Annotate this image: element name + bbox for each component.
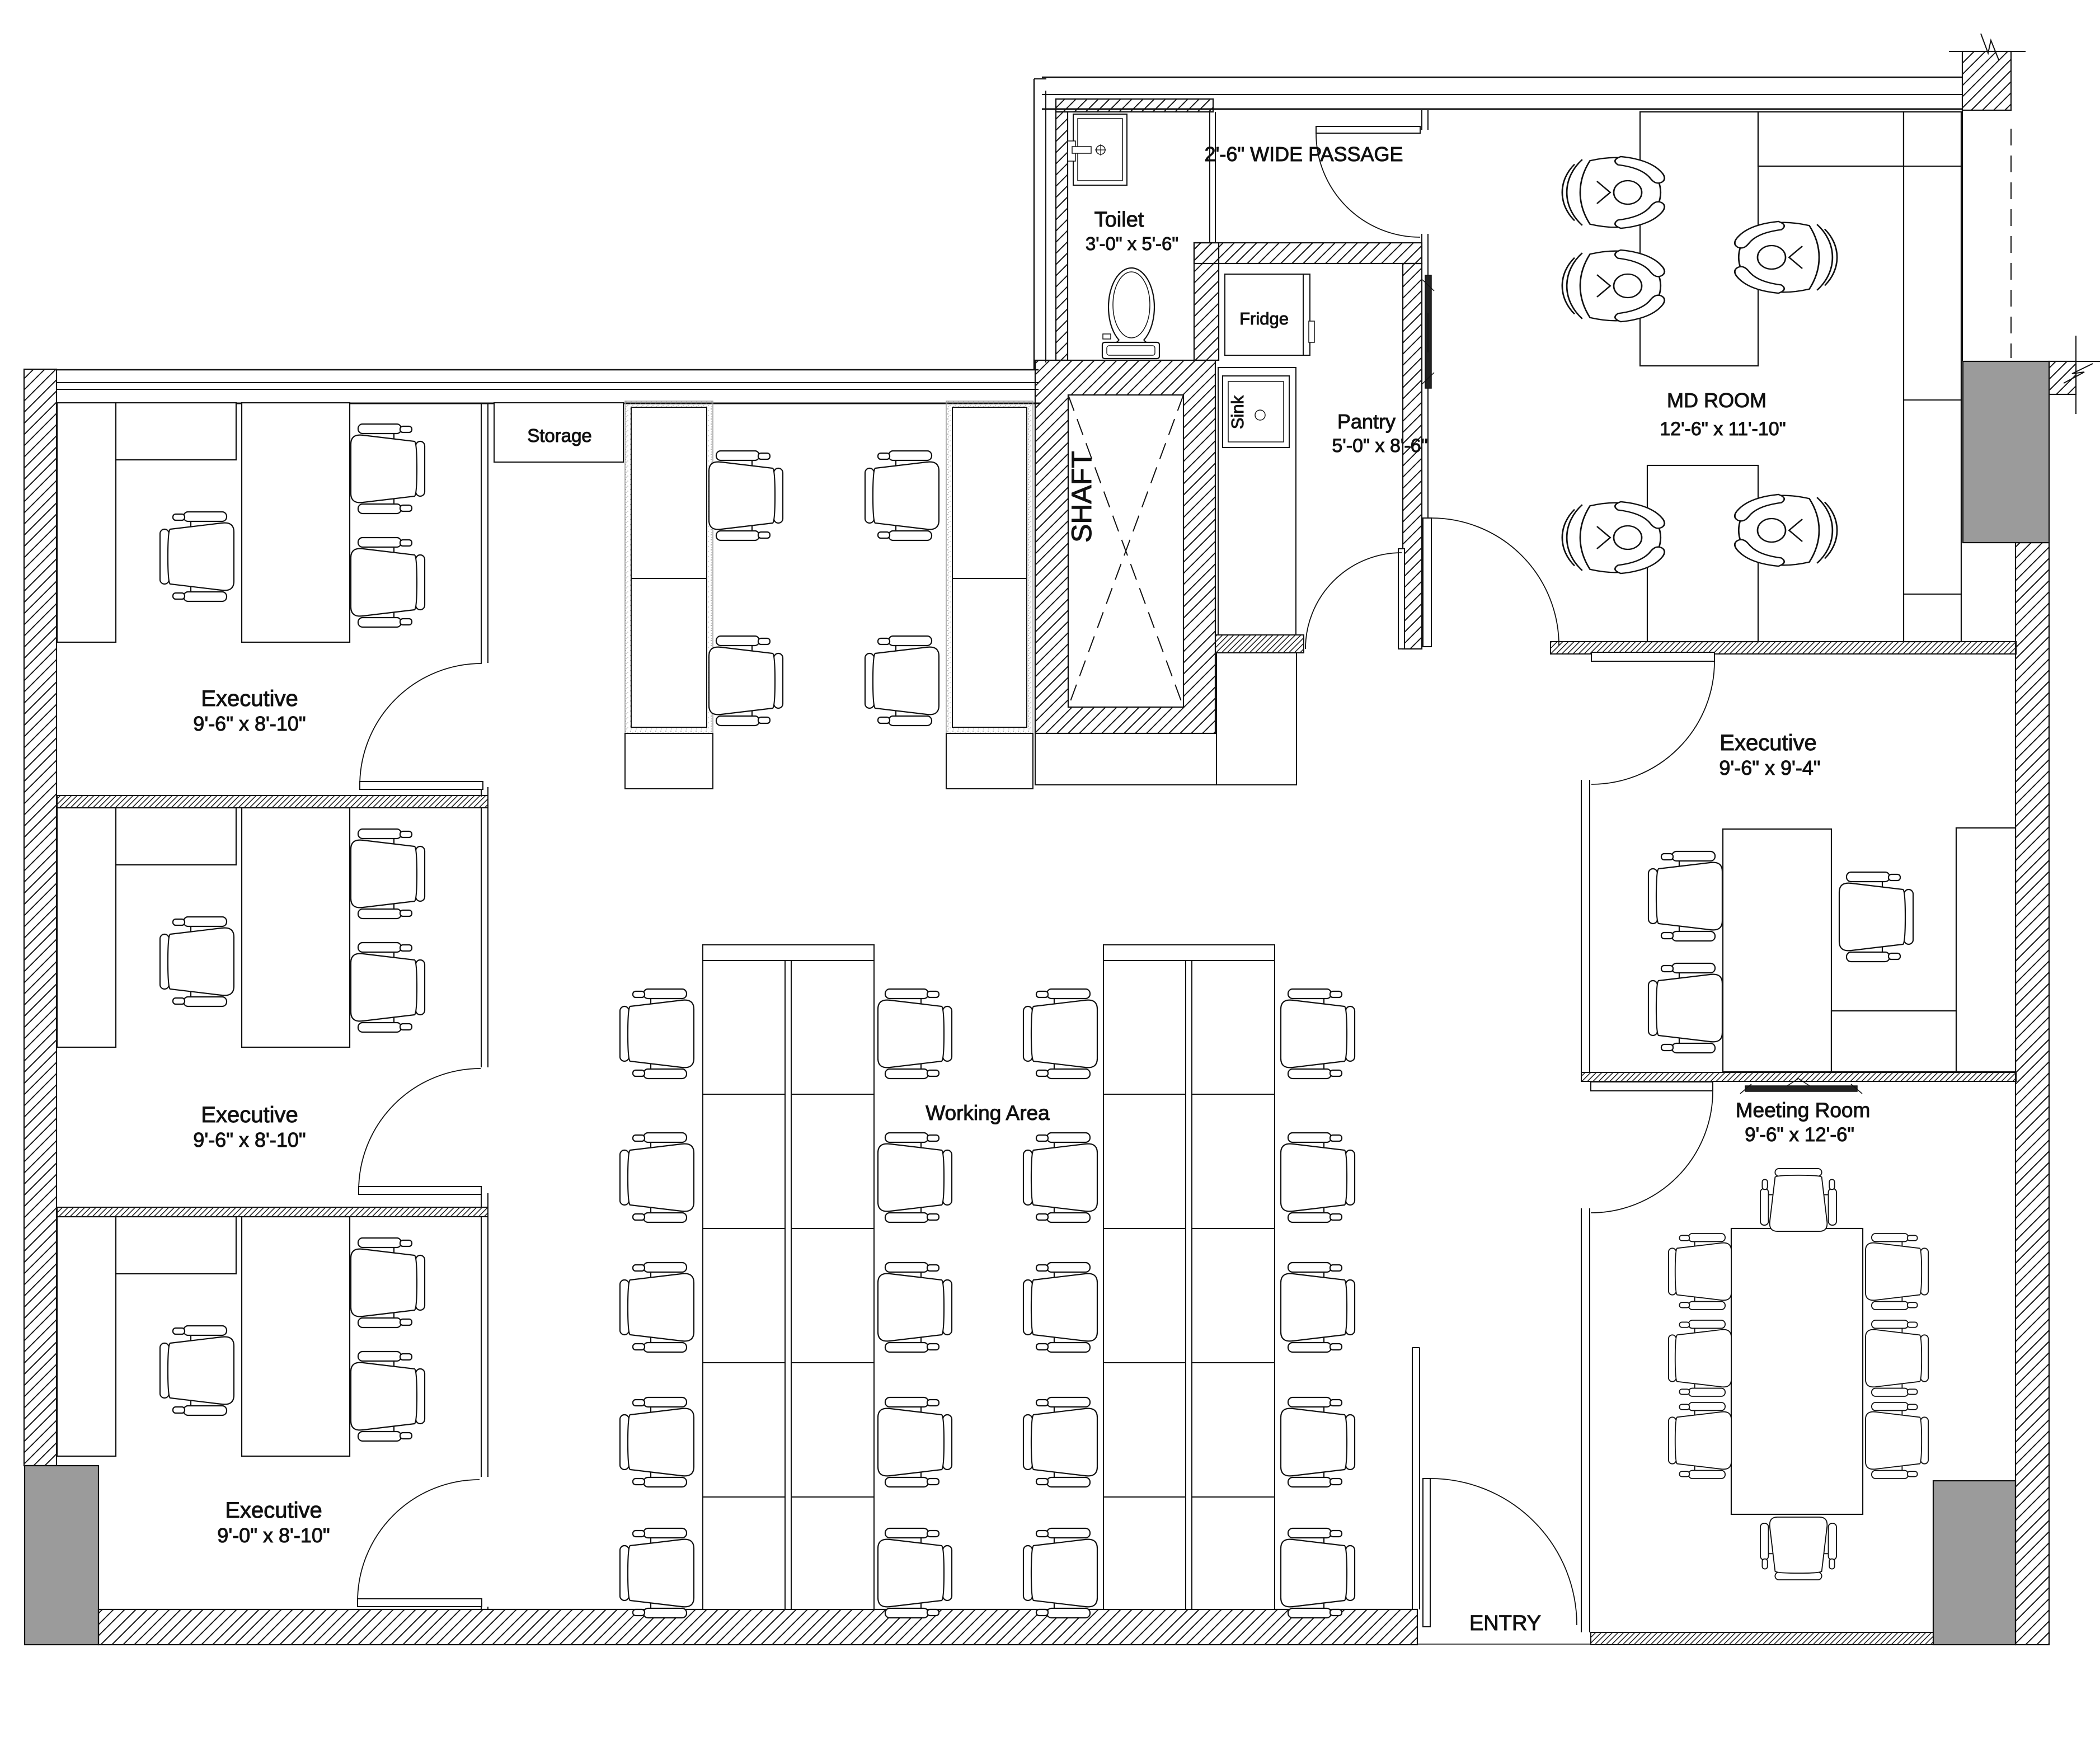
svg-text:ENTRY: ENTRY [1469, 1612, 1541, 1635]
svg-text:Executive: Executive [225, 1498, 322, 1523]
svg-text:MD ROOM: MD ROOM [1667, 389, 1767, 412]
svg-text:9'-0" x 8'-10": 9'-0" x 8'-10" [217, 1524, 330, 1547]
svg-text:SHAFT: SHAFT [1066, 451, 1097, 543]
svg-text:Working Area: Working Area [925, 1101, 1050, 1124]
svg-text:Executive: Executive [1720, 731, 1816, 755]
svg-text:9'-6" x 9'-4": 9'-6" x 9'-4" [1719, 756, 1820, 779]
svg-text:Sink: Sink [1228, 395, 1247, 429]
svg-text:2'-6" WIDE PASSAGE: 2'-6" WIDE PASSAGE [1204, 143, 1403, 166]
svg-text:9'-6" x 8'-10": 9'-6" x 8'-10" [193, 712, 306, 735]
svg-text:9'-6" x 8'-10": 9'-6" x 8'-10" [193, 1128, 306, 1151]
svg-text:12'-6" x 11'-10": 12'-6" x 11'-10" [1660, 418, 1786, 440]
svg-text:3'-0" x 5'-6": 3'-0" x 5'-6" [1086, 233, 1178, 254]
svg-text:Toilet: Toilet [1094, 208, 1144, 232]
svg-text:Executive: Executive [201, 1103, 298, 1127]
svg-text:9'-6" x 12'-6": 9'-6" x 12'-6" [1745, 1124, 1854, 1146]
svg-text:Fridge: Fridge [1239, 309, 1289, 328]
svg-text:5'-0" x 8'-6": 5'-0" x 8'-6" [1332, 435, 1427, 456]
svg-text:Meeting Room: Meeting Room [1736, 1099, 1871, 1122]
svg-text:Executive: Executive [201, 686, 298, 711]
svg-text:Storage: Storage [527, 425, 592, 446]
svg-text:Pantry: Pantry [1337, 410, 1396, 433]
